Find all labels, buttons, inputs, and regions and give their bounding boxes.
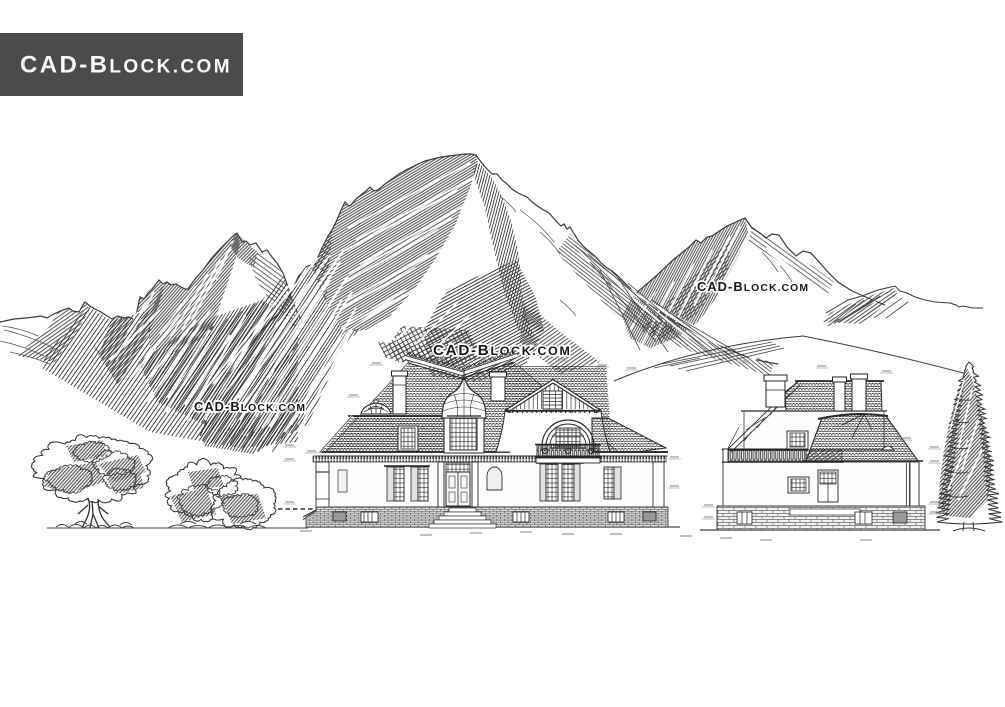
svg-text:CAD-BLOCK.COM: CAD-BLOCK.COM [20,52,232,79]
